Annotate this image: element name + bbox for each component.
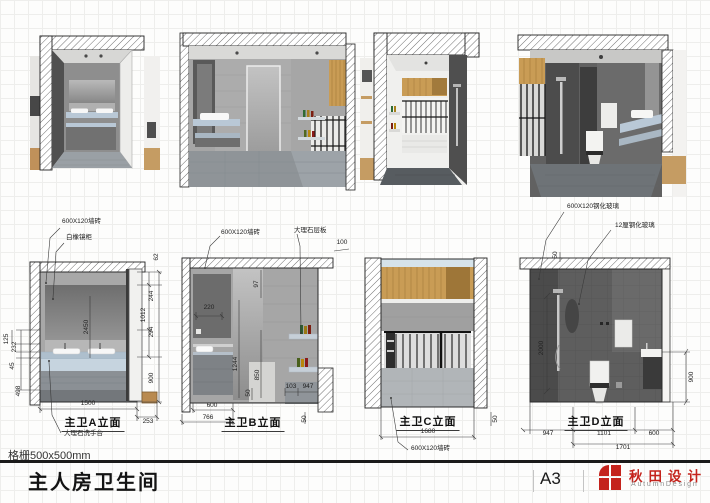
dim-label: 850: [255, 370, 262, 381]
dim-label: 50: [246, 389, 253, 396]
dim-label: 600: [207, 403, 218, 410]
elevation-b-drawing: [180, 234, 349, 425]
brand-logo-icon: [599, 465, 621, 490]
dim-label: 1701: [616, 445, 630, 452]
dim-label: 600: [649, 431, 660, 438]
dim-label: 294: [149, 327, 156, 338]
dim-label: 100: [337, 240, 348, 247]
paper-size-label: A3: [540, 469, 561, 489]
drawing-sheet: 600X120墙砖 白橡镜柜 大理石洗手台 62 244 1012 294 90…: [0, 0, 710, 503]
dim-label: 50: [302, 415, 309, 422]
elevation-a-title: 主卫A立面: [62, 414, 125, 432]
elevation-b-title: 主卫B立面: [222, 414, 285, 432]
titleblock-separator: [533, 470, 534, 492]
brand-name-en: AutumnDesign: [631, 481, 699, 488]
dim-label: 232: [12, 342, 19, 353]
annotation-shelf-b: 大理石层板: [294, 228, 327, 235]
perspective-view-2: [180, 33, 355, 190]
dim-label: 62: [154, 253, 161, 260]
elevation-c-title: 主卫C立面: [397, 413, 460, 431]
annotation-wall-tile-b: 600X120墙砖: [221, 230, 260, 237]
annotation-glass-tile-d: 600X120钢化玻璃: [567, 204, 619, 211]
titleblock-divider: [0, 460, 710, 463]
annotation-glass-d: 12厘钢化玻璃: [615, 223, 655, 230]
dim-label: 947: [543, 431, 554, 438]
dim-label: 220: [204, 305, 215, 312]
annotation-wall-tile-c: 600X120墙砖: [411, 446, 450, 453]
annotation-mirror-a: 白橡镜柜: [66, 235, 92, 242]
dim-label: 947: [303, 384, 314, 391]
sheet-title: 主人房卫生间: [28, 466, 160, 495]
dim-label: 45: [10, 362, 17, 369]
dim-label: 2450: [84, 320, 91, 334]
dim-label: 125: [4, 334, 11, 345]
dim-label: 1244: [233, 357, 240, 371]
elevation-d-title: 主卫D立面: [565, 413, 628, 431]
dim-label: 498: [16, 386, 23, 397]
dim-label: 1500: [81, 401, 95, 408]
annotation-wall-tile-a: 600X120墙砖: [62, 219, 101, 226]
dim-label: 766: [203, 415, 214, 422]
dim-label: 253: [143, 419, 154, 426]
perspective-view-4: [518, 35, 686, 197]
dim-label: 50: [493, 415, 500, 422]
dim-label: 50: [553, 251, 560, 258]
dim-label: 900: [689, 372, 696, 383]
dim-label: 1012: [141, 308, 148, 322]
perspective-view-1: [30, 36, 160, 170]
perspective-view-3: [360, 33, 479, 185]
dim-label: 97: [254, 280, 261, 287]
dim-label: 103: [286, 384, 297, 391]
dim-label: 1101: [597, 431, 611, 438]
titleblock-separator: [583, 470, 584, 492]
dim-label: 2000: [539, 341, 546, 355]
dim-label: 900: [149, 373, 156, 384]
dim-label: 244: [149, 291, 156, 302]
